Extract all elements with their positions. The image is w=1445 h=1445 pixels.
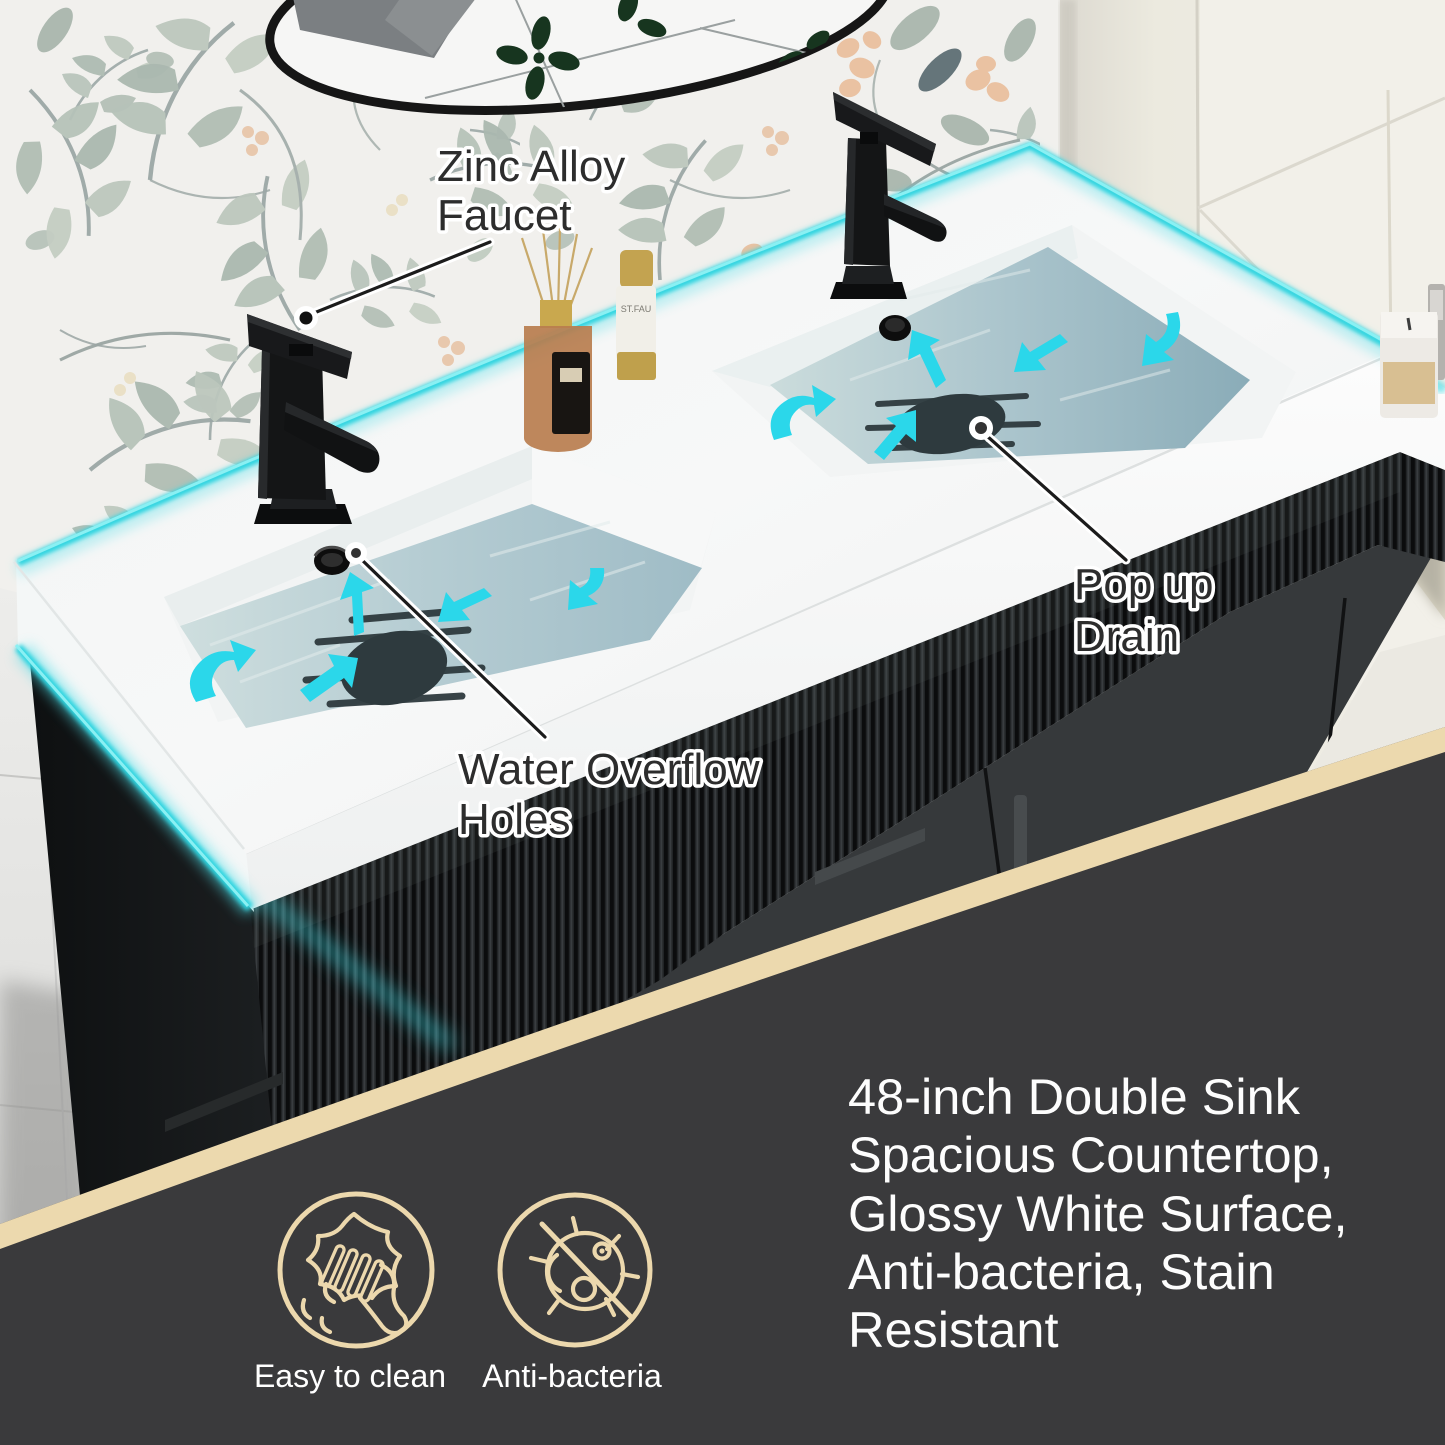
svg-text:Zinc Alloy: Zinc Alloy bbox=[437, 142, 625, 191]
svg-text:Holes: Holes bbox=[458, 795, 571, 844]
svg-text:Pop up: Pop up bbox=[1074, 560, 1213, 609]
svg-text:Drain: Drain bbox=[1074, 612, 1179, 661]
svg-text:Resistant: Resistant bbox=[848, 1301, 1059, 1358]
svg-text:48-inch Double Sink: 48-inch Double Sink bbox=[848, 1068, 1301, 1125]
svg-text:Easy to clean: Easy to clean bbox=[254, 1358, 446, 1394]
svg-text:Water Overflow: Water Overflow bbox=[458, 745, 760, 794]
svg-text:Faucet: Faucet bbox=[437, 191, 572, 240]
svg-text:Spacious Countertop,: Spacious Countertop, bbox=[848, 1126, 1334, 1183]
svg-text:Anti-bacteria: Anti-bacteria bbox=[482, 1358, 662, 1394]
svg-text:Anti-bacteria, Stain: Anti-bacteria, Stain bbox=[848, 1243, 1275, 1300]
svg-text:ST.FAU: ST.FAU bbox=[621, 304, 652, 314]
svg-text:Glossy White Surface,: Glossy White Surface, bbox=[848, 1185, 1348, 1242]
